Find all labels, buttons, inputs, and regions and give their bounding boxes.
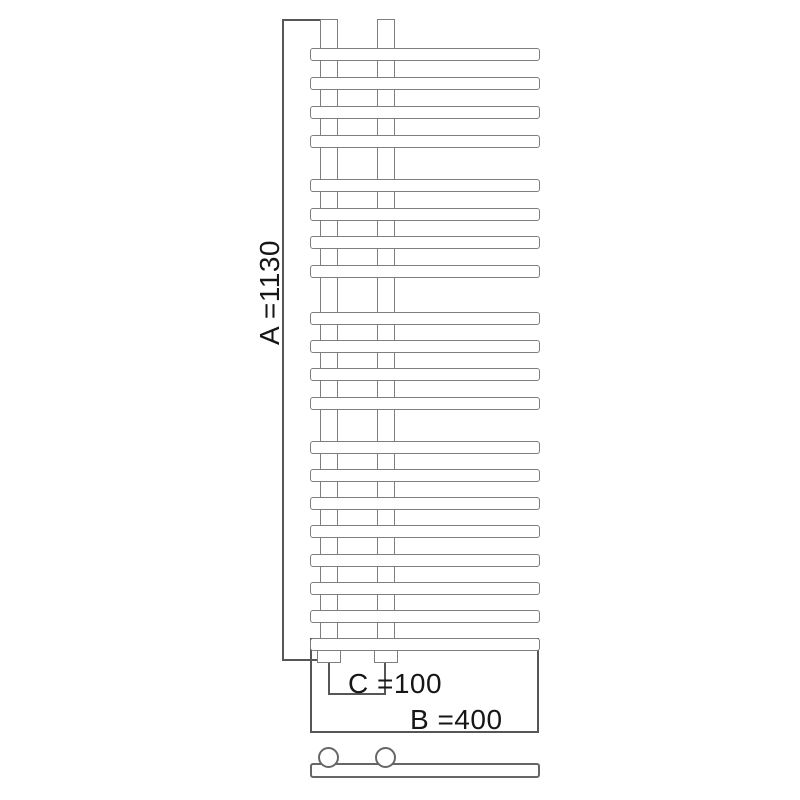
towel-rail: [310, 469, 540, 482]
floor-line: [310, 763, 540, 778]
towel-rail: [310, 638, 540, 651]
towel-rail: [310, 135, 540, 148]
towel-rail: [310, 397, 540, 410]
towel-rail: [310, 77, 540, 90]
towel-rail: [310, 582, 540, 595]
towel-rail: [310, 208, 540, 221]
valve-connection-left: [318, 747, 339, 768]
towel-rail: [310, 525, 540, 538]
towel-rail: [310, 340, 540, 353]
riser-foot-left: [317, 650, 341, 663]
towel-rail: [310, 312, 540, 325]
towel-rail: [310, 554, 540, 567]
towel-rail: [310, 265, 540, 278]
dimension-label-A: A =1130: [256, 243, 284, 345]
towel-rail: [310, 441, 540, 454]
towel-rail: [310, 48, 540, 61]
towel-rail: [310, 179, 540, 192]
dimension-label-B: B =400: [410, 706, 503, 734]
valve-connection-right: [375, 747, 396, 768]
towel-rail: [310, 236, 540, 249]
radiator-dimension-diagram: A =1130 C =100 B =400: [0, 0, 800, 800]
riser-foot-right: [374, 650, 398, 663]
c-bracket-left: [328, 663, 330, 695]
towel-rail: [310, 497, 540, 510]
dimension-tick-A-top: [282, 19, 321, 21]
towel-rail: [310, 106, 540, 119]
towel-rail: [310, 610, 540, 623]
towel-rail: [310, 368, 540, 381]
dimension-label-C: C =100: [348, 670, 442, 698]
